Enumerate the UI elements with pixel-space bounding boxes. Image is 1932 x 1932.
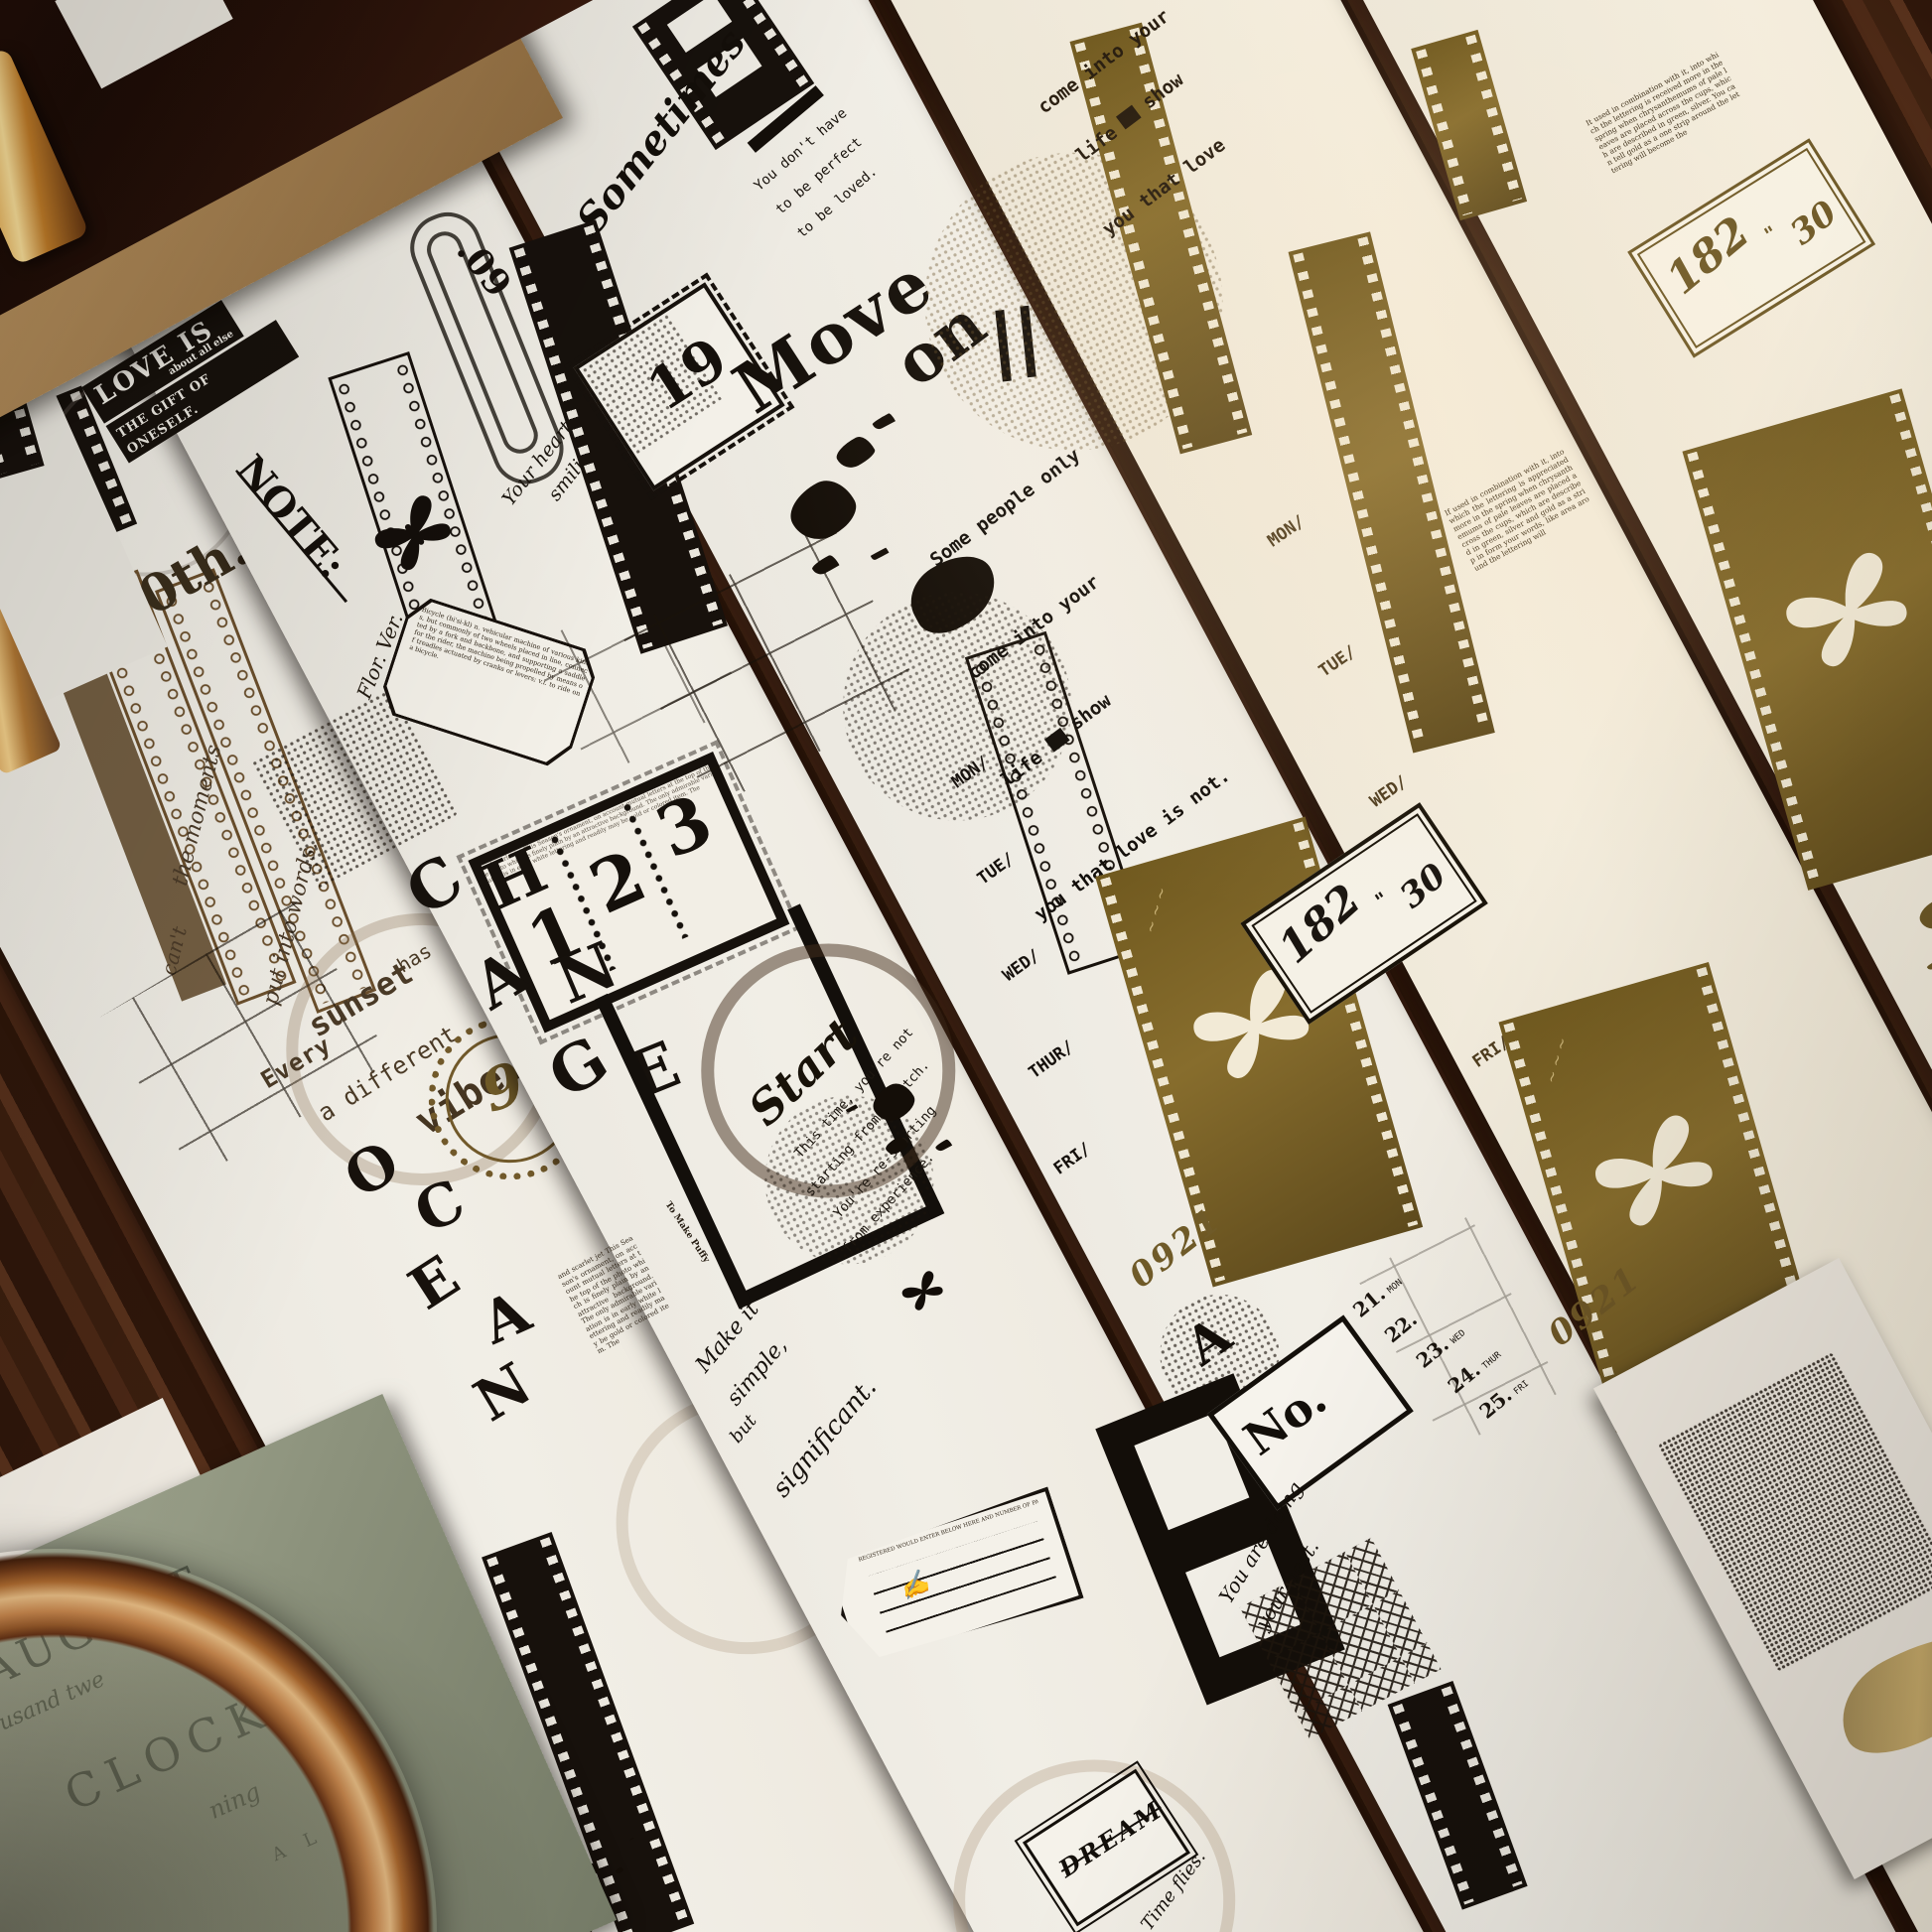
ink-splatter-big xyxy=(781,472,865,550)
ocean-letter-a: A xyxy=(472,1278,540,1357)
gold-splatter-2 xyxy=(1915,896,1932,934)
make-line-4: significant. xyxy=(766,1373,883,1503)
butterfly-small-icon xyxy=(891,1258,955,1322)
gold-film-strip-2 xyxy=(1289,231,1495,753)
ocean-letter-n: N xyxy=(463,1349,542,1435)
week-tue: TUE/ xyxy=(974,849,1019,889)
frame-182-gold-b: 30 xyxy=(1783,193,1845,253)
photo-of-washi-tape-strips-on-wood: 30th. the moments can't put into words. … xyxy=(0,0,1932,1932)
people-line-3b: show xyxy=(1066,690,1116,735)
perfect-line-2: to be perfect xyxy=(772,134,865,217)
butterfly-white-icon-2 xyxy=(1564,1078,1745,1260)
week-gold-tue: TUE/ xyxy=(1315,641,1360,681)
week-gold-mon: MON/ xyxy=(1264,511,1309,551)
make-line-3: but xyxy=(726,1411,761,1448)
gold-script-marks: ~ ~ ~ xyxy=(1141,885,1171,934)
ocean-letter-e: E xyxy=(397,1242,471,1322)
film-strip-bottom xyxy=(1388,1681,1528,1910)
no-label: No. xyxy=(1234,1371,1336,1465)
frame-182-gold-sep: " xyxy=(1760,220,1782,246)
week-wed: WED/ xyxy=(999,946,1043,986)
change-letter-g: G xyxy=(536,1022,621,1113)
week-thur: THUR/ xyxy=(1026,1037,1078,1083)
luggage-tag: REGISTERED WOULD ENTER BELOW HERE AND NU… xyxy=(823,1486,1084,1671)
butterfly-white-icon-3 xyxy=(1753,515,1932,703)
frame-182-b: 30 xyxy=(1393,856,1454,916)
people-line-1: Some people only xyxy=(926,445,1084,572)
week-gold-wed: WED/ xyxy=(1366,772,1411,812)
frame-182-sep: " xyxy=(1371,887,1393,912)
gold-script-marks-2: ~ ~ ~ xyxy=(1542,1035,1572,1085)
week-fri: FRI/ xyxy=(1050,1139,1095,1178)
